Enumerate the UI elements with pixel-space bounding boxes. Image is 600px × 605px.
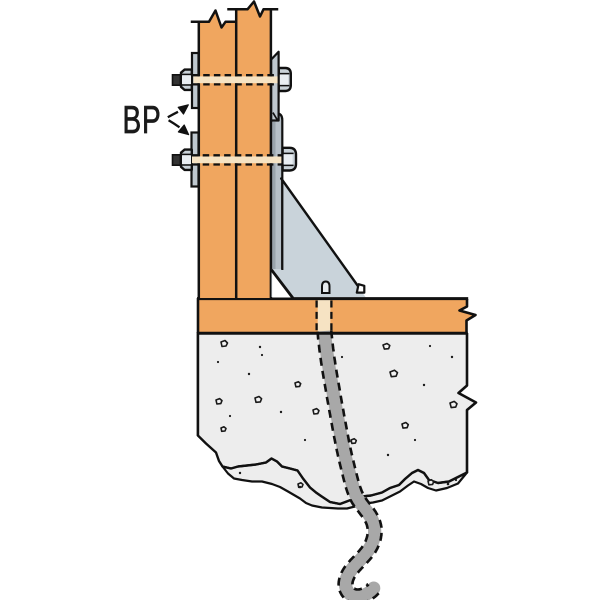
svg-text:BP: BP bbox=[123, 99, 162, 143]
